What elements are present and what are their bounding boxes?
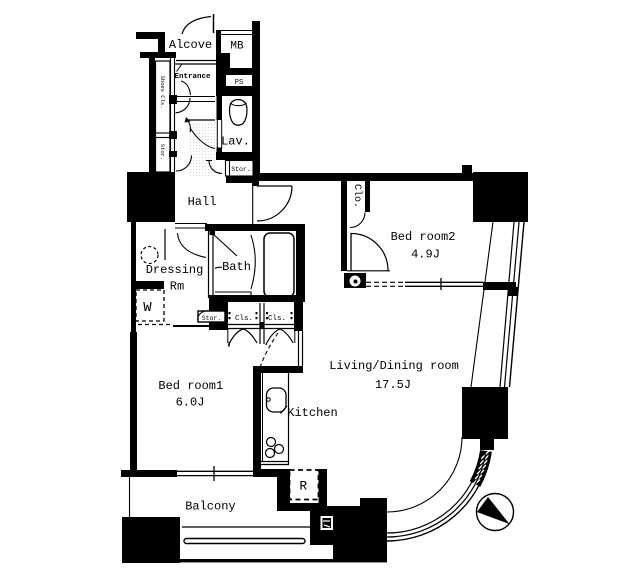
svg-text:W: W bbox=[143, 300, 152, 316]
svg-text:Kitchen: Kitchen bbox=[287, 406, 337, 420]
svg-text:Hall: Hall bbox=[188, 195, 217, 209]
svg-text:Cls.: Cls. bbox=[268, 315, 286, 323]
svg-text:PS: PS bbox=[235, 79, 243, 87]
svg-text:17.5J: 17.5J bbox=[375, 378, 411, 392]
svg-text:MB: MB bbox=[230, 41, 244, 53]
svg-text:Clo.: Clo. bbox=[351, 184, 363, 208]
svg-text:Alcove: Alcove bbox=[169, 38, 212, 52]
svg-text:Stor.: Stor. bbox=[202, 315, 222, 322]
svg-text:Bed room2: Bed room2 bbox=[391, 230, 456, 244]
svg-text:Bath: Bath bbox=[222, 260, 251, 274]
svg-text:Rm: Rm bbox=[170, 280, 184, 294]
svg-text:6.0J: 6.0J bbox=[176, 396, 205, 410]
svg-text:Cls.: Cls. bbox=[235, 315, 253, 323]
svg-text:Stor.: Stor. bbox=[231, 166, 251, 173]
svg-text:Bed room1: Bed room1 bbox=[158, 379, 223, 393]
svg-text:Balcony: Balcony bbox=[185, 500, 235, 514]
svg-text:Shoes Cls.: Shoes Cls. bbox=[159, 75, 166, 108]
svg-text:Dressing: Dressing bbox=[146, 263, 204, 277]
svg-text:Lav.: Lav. bbox=[221, 135, 250, 149]
svg-text:Stor.: Stor. bbox=[159, 144, 166, 161]
svg-text:4.9J: 4.9J bbox=[411, 248, 440, 262]
svg-text:Living/Dining room: Living/Dining room bbox=[329, 359, 459, 373]
svg-text:Entrance: Entrance bbox=[174, 73, 211, 81]
svg-text:R: R bbox=[299, 479, 307, 494]
